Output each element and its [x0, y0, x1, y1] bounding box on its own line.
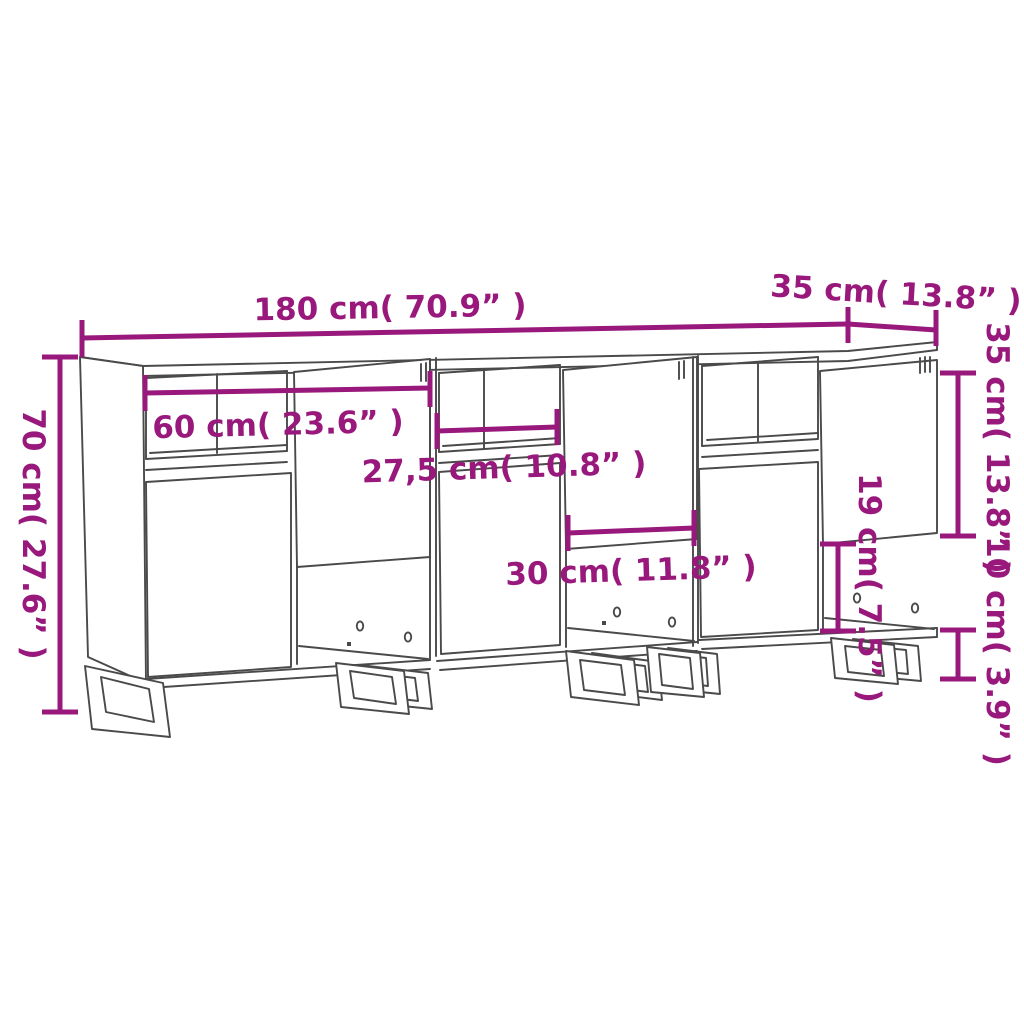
top-panel	[80, 342, 937, 376]
shelf-pin-hole	[614, 607, 620, 616]
sideboard-dimension-diagram: 180 cm( 70.9” ) 35 cm( 13.8” ) 70 cm( 27…	[0, 0, 1024, 1024]
dim-top-depth-line	[848, 324, 936, 330]
dim-total-width: 180 cm( 70.9” )	[82, 288, 848, 357]
shelf-pin	[347, 642, 351, 646]
shelf-pin-hole	[357, 621, 363, 630]
dim-top-depth-label: 35 cm( 13.8” )	[769, 268, 1022, 319]
dim-interior-width-label: 60 cm( 23.6” )	[152, 404, 404, 447]
left-side-panel	[80, 357, 146, 683]
dim-total-height-label: 70 cm( 27.6” )	[15, 408, 51, 659]
dim-shelf-width-line	[437, 427, 557, 431]
unit-3	[699, 357, 937, 649]
unit-2	[437, 357, 697, 670]
dim-total-width-line	[82, 324, 848, 338]
shelf-pin	[602, 621, 606, 625]
sideboard-drawing	[80, 342, 937, 737]
unit-3-open-shelf	[702, 357, 818, 457]
shelf-pin-hole	[405, 632, 411, 641]
dim-leg-height: 10 cm( 3.9” )	[940, 536, 1015, 766]
dim-total-width-label: 180 cm( 70.9” )	[253, 288, 527, 329]
unit-1-bottom-opening	[297, 567, 428, 664]
leg-frame-hole	[659, 654, 693, 689]
leg-frame-hole	[580, 660, 625, 695]
dim-leg-height-label: 10 cm( 3.9” )	[979, 536, 1015, 766]
diagram-canvas: 180 cm( 70.9” ) 35 cm( 13.8” ) 70 cm( 27…	[0, 0, 1024, 1024]
unit-1-left-door	[146, 473, 291, 677]
dim-total-height: 70 cm( 27.6” )	[15, 357, 78, 712]
shelf-pin-hole	[669, 617, 675, 626]
shelf-pin-hole	[912, 603, 918, 612]
dim-opening-height-label: 19 cm( 7.5” )	[851, 473, 887, 703]
leg-frame-hole	[350, 671, 396, 704]
